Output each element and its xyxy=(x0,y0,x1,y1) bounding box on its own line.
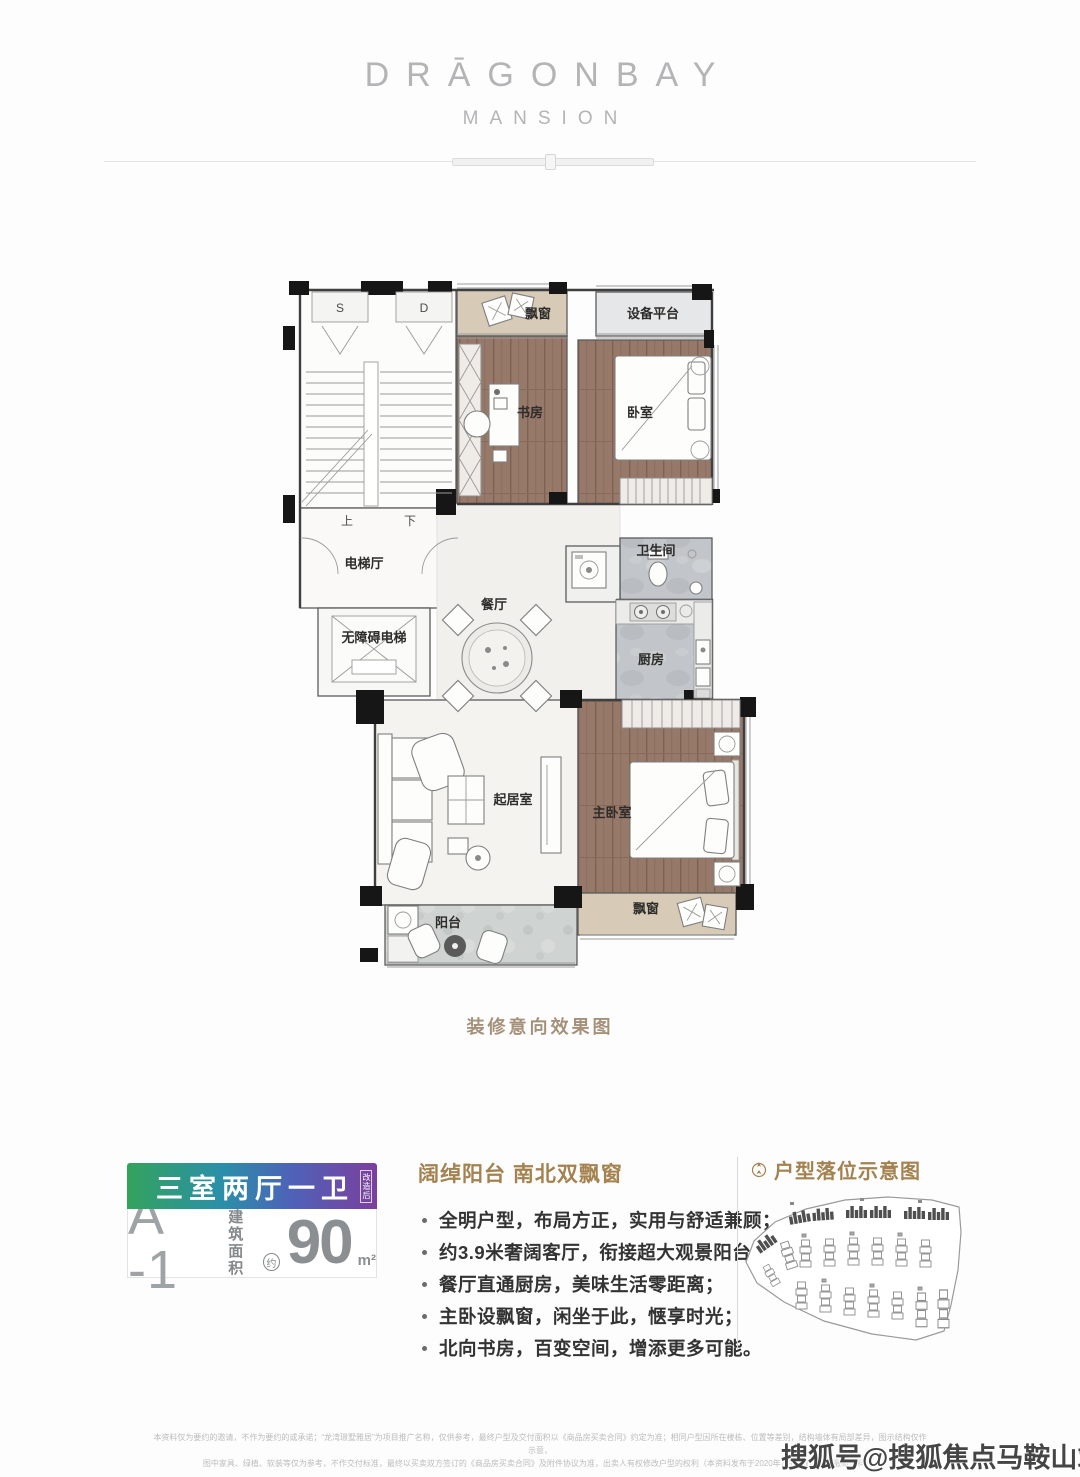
bullet-dot-icon xyxy=(422,1282,427,1287)
feature-text: 主卧设飘窗，闲坐于此，惬享时光； xyxy=(439,1303,743,1329)
washing-machine xyxy=(572,552,606,588)
label-dining-room: 餐厅 xyxy=(480,597,507,612)
site-plan-heading: 户型落位示意图 xyxy=(774,1155,921,1184)
poster-page: DRĀGONBAY MANSION xyxy=(0,0,1080,1477)
area-unit: m² xyxy=(358,1252,376,1269)
features-block: 阔绰阳台 南北双飘窗 全明户型，布局方正，实用与舒适兼顾； 约3.9米奢阔客厅，… xyxy=(418,1158,730,1364)
floor-plan: S D 飘窗 设备平台 书房 卧室 上 下 电梯厅 无障碍电梯 餐厅 卫生间 厨… xyxy=(278,272,770,975)
unit-badge: 三室两厅一卫 改造后 A -1 建筑 面积 约 90 m² xyxy=(127,1163,377,1278)
label-balcony: 阳台 xyxy=(435,915,461,930)
label-bay-window-top: 飘窗 xyxy=(525,306,551,321)
label-kitchen: 厨房 xyxy=(638,652,664,667)
bullet-dot-icon xyxy=(422,1218,427,1223)
area-value: 90 xyxy=(287,1212,352,1274)
label-elevator-hall: 电梯厅 xyxy=(344,556,383,571)
approx-circle: 约 xyxy=(263,1253,280,1271)
label-down: 下 xyxy=(404,514,416,528)
unit-layout-bar: 三室两厅一卫 改造后 xyxy=(127,1163,377,1209)
site-plan-map xyxy=(735,1188,975,1363)
features-list: 全明户型，布局方正，实用与舒适兼顾； 约3.9米奢阔客厅，衔接超大观景阳台； 餐… xyxy=(418,1204,730,1364)
feature-item: 全明户型，布局方正，实用与舒适兼顾； xyxy=(418,1204,730,1236)
accessible-elevator-shaft xyxy=(332,616,416,682)
bullet-dot-icon xyxy=(422,1346,427,1351)
area-label-bottom: 面积 xyxy=(228,1243,256,1278)
label-stair-s: S xyxy=(336,301,344,315)
unit-layout-note: 改造后 xyxy=(360,1170,372,1203)
feature-text: 约3.9米奢阔客厅，衔接超大观景阳台； xyxy=(439,1239,770,1265)
label-equipment-platform: 设备平台 xyxy=(627,306,679,321)
label-up: 上 xyxy=(341,514,353,528)
feature-item: 主卧设飘窗，闲坐于此，惬享时光； xyxy=(418,1300,730,1332)
area-label-top: 建筑 xyxy=(228,1209,256,1244)
label-living-room: 起居室 xyxy=(492,792,532,807)
divider-ornament xyxy=(545,154,556,170)
compass-icon xyxy=(750,1160,768,1180)
sohu-watermark: 搜狐号@搜狐焦点马鞍山站 xyxy=(781,1436,1080,1475)
feature-text: 北向书房，百变空间，增添更多可能。 xyxy=(439,1335,762,1361)
unit-area-panel: A -1 建筑 面积 约 90 m² xyxy=(127,1209,377,1278)
label-bathroom: 卫生间 xyxy=(636,543,675,558)
bullet-dot-icon xyxy=(422,1250,427,1255)
site-plan-header: 户型落位示意图 xyxy=(750,1155,978,1184)
feature-text: 餐厅直通厨房，美味生活零距离； xyxy=(439,1271,724,1297)
label-study: 书房 xyxy=(517,405,543,420)
label-master-bedroom: 主卧室 xyxy=(592,805,631,820)
brand-subtitle: MANSION xyxy=(0,108,1080,130)
label-accessible-elevator: 无障碍电梯 xyxy=(340,630,406,645)
feature-item: 餐厅直通厨房，美味生活零距离； xyxy=(418,1268,730,1300)
label-bay-window-bottom: 飘窗 xyxy=(633,901,659,916)
bullet-dot-icon xyxy=(422,1314,427,1319)
feature-text: 全明户型，布局方正，实用与舒适兼顾； xyxy=(439,1207,781,1233)
plan-caption: 装修意向效果图 xyxy=(0,1013,1080,1039)
site-plan-block: 户型落位示意图 xyxy=(750,1155,978,1184)
area-label: 建筑 面积 xyxy=(228,1209,256,1278)
bedroom-furniture xyxy=(615,356,712,504)
feature-item: 北向书房，百变空间，增添更多可能。 xyxy=(418,1332,730,1364)
feature-item: 约3.9米奢阔客厅，衔接超大观景阳台； xyxy=(418,1236,730,1268)
label-bedroom: 卧室 xyxy=(627,405,653,420)
unit-layout-text: 三室两厅一卫 xyxy=(150,1167,354,1206)
features-heading: 阔绰阳台 南北双飘窗 xyxy=(418,1158,730,1188)
brand-title: DRĀGONBAY xyxy=(0,56,1080,95)
master-bedroom-furniture xyxy=(622,700,740,886)
label-stair-d: D xyxy=(420,301,429,315)
